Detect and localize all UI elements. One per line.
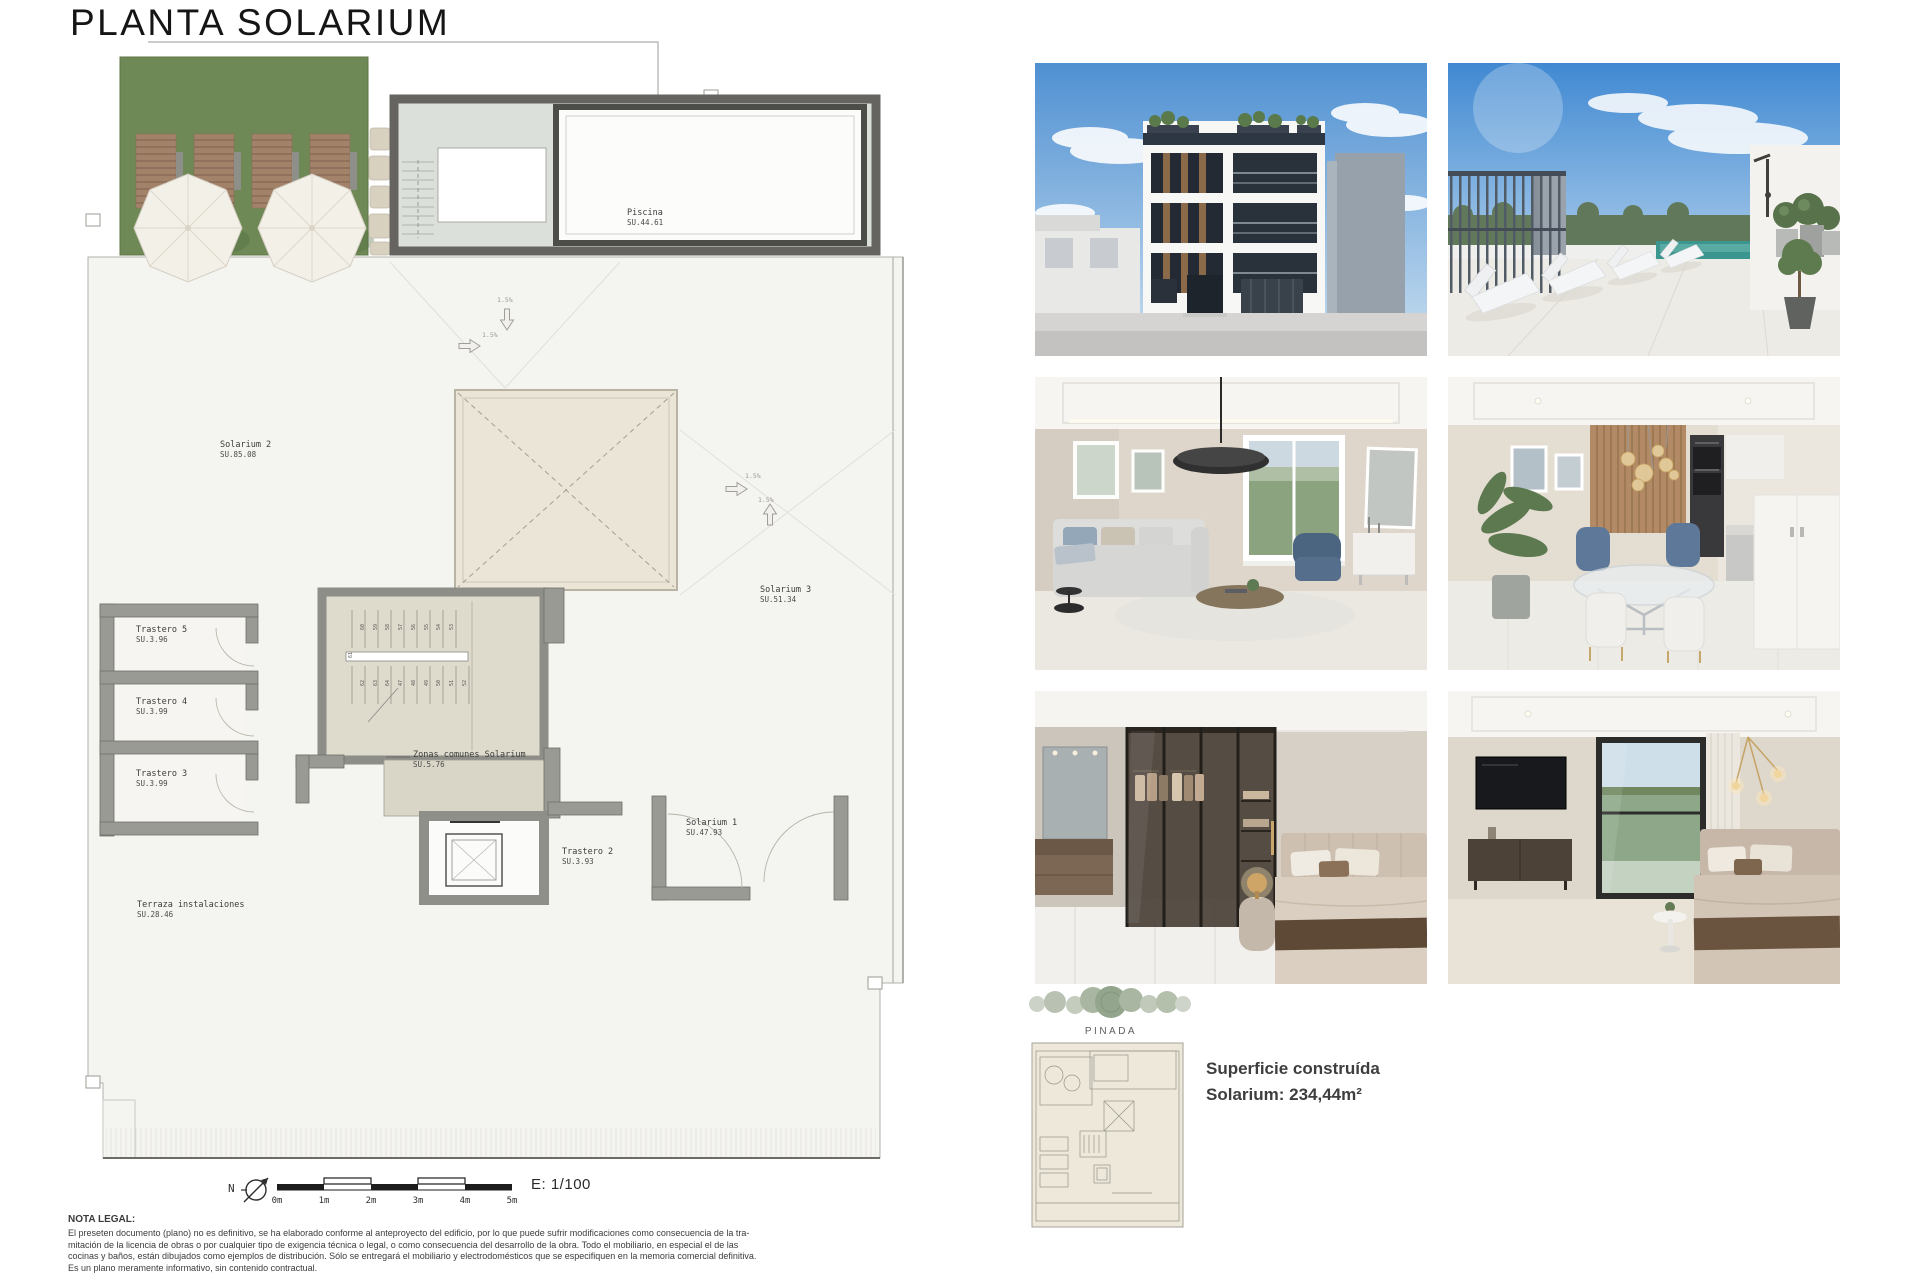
legal-line: cocinas y baños, están dibujados como ej… bbox=[68, 1251, 768, 1263]
room-name: Terraza instalaciones bbox=[137, 900, 244, 910]
photo-rooftop-terrace bbox=[1448, 63, 1840, 356]
stair-number: 48 bbox=[411, 680, 417, 686]
brand-name: PINADA bbox=[1031, 1026, 1191, 1037]
summary-line-2: Solarium: 234,44m² bbox=[1206, 1082, 1380, 1108]
key-plan-mini bbox=[1032, 1043, 1183, 1227]
stair-number: 62 bbox=[360, 680, 366, 686]
room-label-trastero2: Trastero 2 SU.3.93 bbox=[562, 847, 613, 867]
scale-ratio: E: 1/100 bbox=[531, 1176, 591, 1193]
stair-number: 59 bbox=[373, 624, 379, 630]
room-name: Trastero 5 bbox=[136, 625, 187, 635]
legal-line: Es un plano meramente informativo, sin c… bbox=[68, 1263, 768, 1275]
room-label-trastero5: Trastero 5 SU.3.96 bbox=[136, 625, 187, 645]
legal-line: El preseten documento (plano) no es defi… bbox=[68, 1228, 768, 1240]
scale-tick: 4m bbox=[460, 1196, 471, 1206]
slope-label: 1.5% bbox=[482, 331, 498, 339]
armchair bbox=[1293, 533, 1341, 581]
stepping-stones bbox=[369, 128, 390, 255]
bed bbox=[1694, 829, 1840, 984]
main-building bbox=[1143, 111, 1325, 315]
room-label-trastero3: Trastero 3 SU.3.99 bbox=[136, 769, 187, 789]
pool-enclosure bbox=[394, 99, 876, 251]
scale-tick: 3m bbox=[413, 1196, 424, 1206]
wall-art bbox=[1556, 455, 1582, 489]
room-area: SU.28.46 bbox=[137, 910, 244, 920]
stair-number: 50 bbox=[436, 680, 442, 686]
ceiling bbox=[1035, 691, 1427, 731]
room-name: Trastero 3 bbox=[136, 769, 187, 779]
nightstand-lamp bbox=[1239, 867, 1275, 951]
room-area: SU.3.93 bbox=[562, 857, 613, 867]
slope-label: 1.5% bbox=[745, 472, 761, 480]
scale-tick: 0m bbox=[272, 1196, 283, 1206]
scale-tick: 2m bbox=[366, 1196, 377, 1206]
neighbor-building bbox=[1335, 153, 1405, 318]
stair-number: 52 bbox=[462, 680, 468, 686]
room-name: Trastero 4 bbox=[136, 697, 187, 707]
photo-living-room bbox=[1035, 377, 1427, 670]
scale-tick: 1m bbox=[319, 1196, 330, 1206]
stair-number: 47 bbox=[398, 680, 404, 686]
room-name: Solarium 3 bbox=[760, 585, 811, 595]
legal-line: mitación de la licencia de obras o por c… bbox=[68, 1240, 768, 1252]
legal-heading: NOTA LEGAL: bbox=[68, 1214, 768, 1225]
room-label-trastero4: Trastero 4 SU.3.99 bbox=[136, 697, 187, 717]
built-area-summary: Superficie construída Solarium: 234,44m² bbox=[1206, 1056, 1380, 1108]
legal-note: NOTA LEGAL: El preseten documento (plano… bbox=[68, 1214, 768, 1274]
room-name: Piscina bbox=[627, 208, 663, 218]
skylight bbox=[455, 390, 677, 590]
scale-bar bbox=[277, 1178, 512, 1190]
scale-tick: 5m bbox=[507, 1196, 518, 1206]
room-area: SU.3.99 bbox=[136, 707, 187, 717]
bed bbox=[1275, 833, 1427, 984]
stair-number: 54 bbox=[436, 624, 442, 630]
north-label: N bbox=[228, 1182, 235, 1195]
wall-art bbox=[1512, 447, 1546, 491]
stair-number: 56 bbox=[411, 624, 417, 630]
stair-number: 63 bbox=[373, 680, 379, 686]
dining-chair-blue bbox=[1666, 523, 1700, 567]
dining-chair-blue bbox=[1576, 527, 1610, 571]
photo-building-facade bbox=[1035, 63, 1427, 356]
slope-label: 1.5% bbox=[758, 496, 774, 504]
room-label-piscina: Piscina SU.44.61 bbox=[627, 208, 663, 228]
stair-number: 60 bbox=[360, 624, 366, 630]
stair-number: 58 bbox=[385, 624, 391, 630]
brand-logo-trees bbox=[1029, 986, 1191, 1018]
room-label-solarium3: Solarium 3 SU.51.34 bbox=[760, 585, 811, 605]
window bbox=[1596, 737, 1706, 899]
stair-number: 51 bbox=[449, 680, 455, 686]
bathroom-vanity bbox=[1035, 727, 1127, 907]
room-area: SU.44.61 bbox=[627, 218, 663, 228]
wall-art bbox=[1075, 443, 1117, 497]
room-label-terraza-instalaciones: Terraza instalaciones SU.28.46 bbox=[137, 900, 244, 920]
mirror bbox=[1366, 448, 1417, 528]
left-buildings bbox=[1035, 215, 1140, 318]
white-cabinet bbox=[1754, 495, 1840, 649]
stair-number: 64 bbox=[385, 680, 391, 686]
stair-number: 57 bbox=[398, 624, 404, 630]
room-area: SU.51.34 bbox=[760, 595, 811, 605]
room-area: SU.47.93 bbox=[686, 828, 737, 838]
room-name: Zonas comunes Solarium bbox=[413, 750, 526, 760]
stair-number: 55 bbox=[424, 624, 430, 630]
wall-art bbox=[1133, 451, 1163, 491]
room-name: Solarium 2 bbox=[220, 440, 271, 450]
room-label-solarium1: Solarium 1 SU.47.93 bbox=[686, 818, 737, 838]
room-name: Trastero 2 bbox=[562, 847, 613, 857]
pool-piscina bbox=[556, 107, 864, 243]
photo-bedroom-window bbox=[1448, 691, 1840, 984]
summary-line-1: Superficie construída bbox=[1206, 1056, 1380, 1082]
stair-core: 60 59 58 57 56 55 54 53 61 62 63 64 47 4… bbox=[322, 588, 564, 760]
room-label-zonas-comunes: Zonas comunes Solarium SU.5.76 bbox=[413, 750, 526, 770]
stair-number: 61 bbox=[348, 652, 354, 658]
room-area: SU.85.08 bbox=[220, 450, 271, 460]
north-compass bbox=[241, 1178, 268, 1202]
stair-number: 49 bbox=[424, 680, 430, 686]
room-label-solarium2: Solarium 2 SU.85.08 bbox=[220, 440, 271, 460]
sofa bbox=[1053, 519, 1209, 597]
room-area: SU.3.99 bbox=[136, 779, 187, 789]
photo-bedroom-wardrobe bbox=[1035, 691, 1427, 984]
room-area: SU.3.96 bbox=[136, 635, 187, 645]
stair-number: 53 bbox=[449, 624, 455, 630]
slope-label: 1.5% bbox=[497, 296, 513, 304]
photo-dining-kitchen bbox=[1448, 377, 1840, 670]
grass-deck bbox=[120, 57, 374, 282]
ceiling bbox=[1448, 377, 1840, 425]
room-area: SU.5.76 bbox=[413, 760, 526, 770]
room-name: Solarium 1 bbox=[686, 818, 737, 828]
